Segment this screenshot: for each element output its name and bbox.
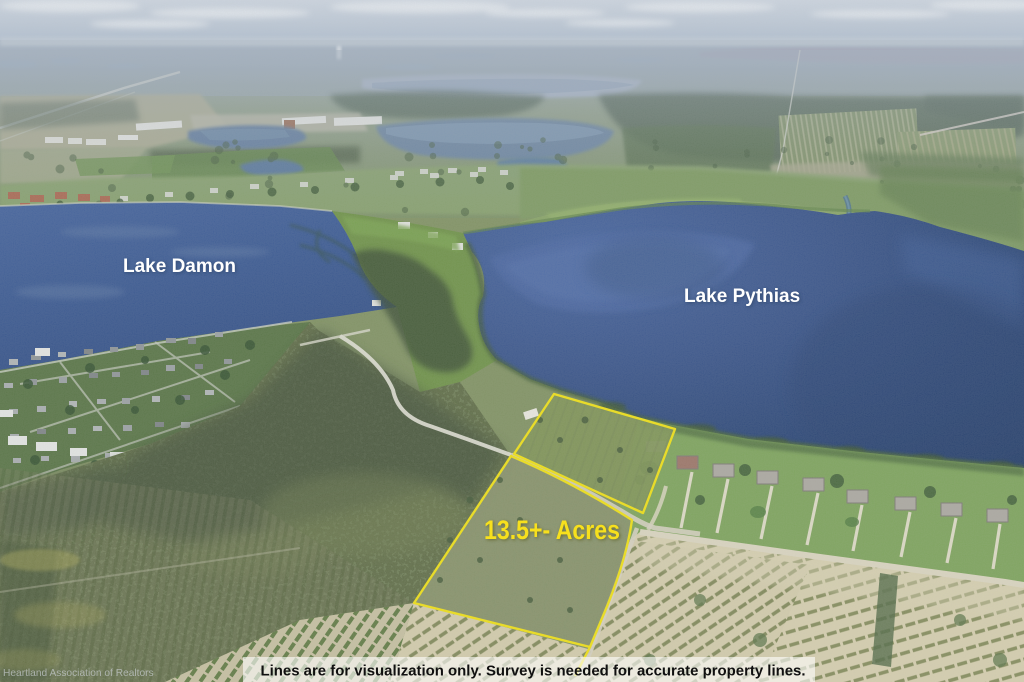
svg-text:Heartland Association of Realt: Heartland Association of Realtors bbox=[3, 668, 154, 679]
svg-text:13.5+- Acres: 13.5+- Acres bbox=[484, 515, 620, 545]
svg-text:Lines are for visualization on: Lines are for visualization only. Survey… bbox=[261, 663, 806, 680]
svg-text:Lake Damon: Lake Damon bbox=[123, 256, 236, 277]
svg-text:Lake Pythias: Lake Pythias bbox=[684, 286, 800, 307]
